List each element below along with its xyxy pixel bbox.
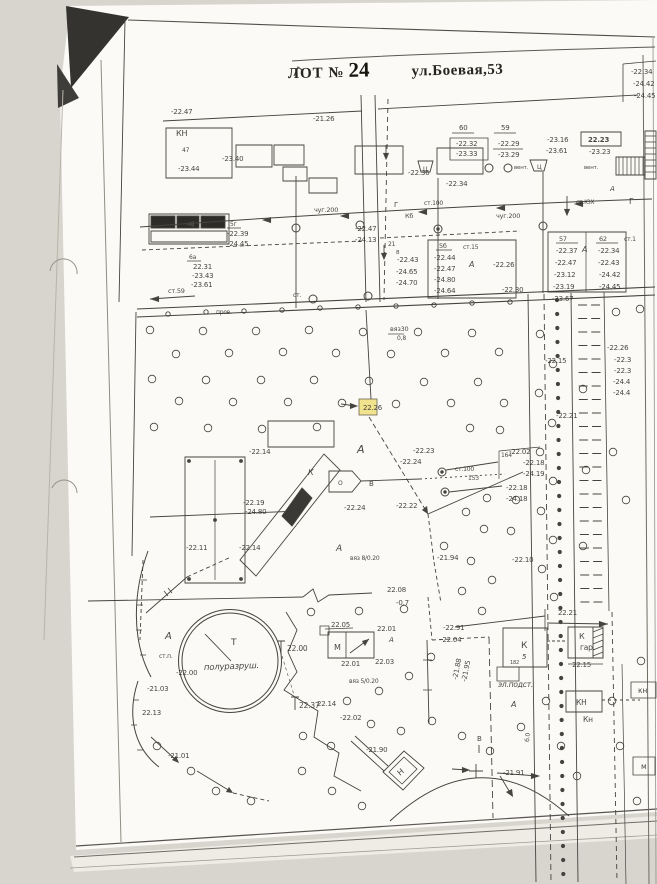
boundary-dot <box>561 830 564 833</box>
elevation-label: 60 <box>459 124 468 132</box>
elevation-label: -23.23 <box>589 148 610 156</box>
boundary-dot <box>557 452 560 455</box>
elevation-label: -22.30 <box>502 286 523 294</box>
elevation-label: вент. <box>514 165 529 171</box>
elevation-label: -22.47 <box>355 225 376 233</box>
map-circle <box>437 228 440 231</box>
boundary-dot <box>560 690 563 693</box>
elevation-label: -22.26 <box>493 261 515 269</box>
elevation-label: 5г <box>230 221 237 228</box>
boundary-dot <box>561 774 564 777</box>
elevation-label: -22.14 <box>239 544 261 552</box>
boundary-dot <box>557 438 560 441</box>
elevation-label: К <box>308 468 314 477</box>
elevation-label: -24.19 <box>523 470 544 478</box>
boundary-dot <box>560 704 563 707</box>
elevation-label: -22.39 <box>227 230 248 238</box>
elevation-label: ст.59 <box>168 287 185 295</box>
elevation-label: -24.80 <box>434 276 455 284</box>
elevation-label: -22.24 <box>344 504 366 512</box>
elevation-label: -23.33 <box>456 150 477 158</box>
elevation-label: 153 <box>468 475 479 482</box>
boundary-dot <box>561 802 564 805</box>
elevation-label: -24.45 <box>599 283 620 291</box>
boundary-dot <box>559 592 562 595</box>
elevation-label: -23.40 <box>222 155 243 163</box>
elevation-label: ст.ЮХ <box>576 199 594 206</box>
elevation-label: б.0 <box>524 732 532 742</box>
elevation-label: -22.19 <box>243 499 264 507</box>
elevation-label: -24.42 <box>633 80 654 88</box>
boundary-dot <box>557 424 560 427</box>
elevation-label: -21.90 <box>366 746 387 754</box>
elevation-label: вяз 8/0.20 <box>350 555 380 562</box>
elevation-label: А <box>335 544 342 554</box>
elevation-label: -23.29 <box>498 151 519 159</box>
site-plan-map: -22.47-21.26КН47-23.44-23.406059-22.32-2… <box>0 0 657 884</box>
elevation-label: кн <box>638 686 647 695</box>
elevation-label: 22.21 <box>558 609 577 617</box>
map-circle <box>240 578 243 581</box>
elevation-label: Кб <box>405 212 413 220</box>
boundary-dot <box>561 858 564 861</box>
elevation-label: -24.45 <box>634 92 655 100</box>
elevation-label: -22.47 <box>171 108 192 116</box>
elevation-label: 22.13 <box>142 709 161 717</box>
elevation-label: -21.26 <box>313 115 335 123</box>
elevation-label: -24.13 <box>355 236 376 244</box>
elevation-label: -23.43 <box>192 272 213 280</box>
boundary-dot <box>558 564 561 567</box>
elevation-label: -22.47 <box>434 265 455 273</box>
elevation-label: 22.05 <box>331 621 350 629</box>
elevation-label: ст.п. <box>159 653 173 660</box>
elevation-label: -22.43 <box>397 256 418 264</box>
elevation-label: -24.4 <box>613 389 631 397</box>
elevation-label: -22.34 <box>446 180 468 188</box>
elevation-label: В <box>369 480 374 488</box>
elevation-label: 22.31 <box>193 263 212 271</box>
boundary-dot <box>557 494 560 497</box>
elevation-label: -21.03 <box>147 685 168 693</box>
elevation-label: -24.42 <box>599 271 620 279</box>
elevation-label: -22.22 <box>396 502 417 510</box>
elevation-label: м <box>641 762 646 771</box>
elevation-label: -23.16 <box>547 136 569 144</box>
boundary-dot <box>558 578 561 581</box>
elevation-label: -22.91 <box>443 624 464 632</box>
elevation-label: -22.32 <box>456 140 477 148</box>
elevation-label: полуразруш. <box>204 661 259 673</box>
elevation-label: 57 <box>559 235 567 243</box>
elevation-label: Г <box>629 197 634 206</box>
boundary-dot <box>560 760 563 763</box>
boundary-dot <box>562 872 565 875</box>
elevation-label: О <box>338 480 343 487</box>
boundary-dot <box>555 312 558 315</box>
boundary-dot <box>561 788 564 791</box>
boundary-dot <box>558 522 561 525</box>
elevation-label: 21 <box>388 241 396 248</box>
elevation-label: -22.18 <box>506 484 527 492</box>
elevation-label: -24.4 <box>613 378 631 386</box>
elevation-label: 5б <box>439 242 447 250</box>
boundary-dot <box>561 844 564 847</box>
elevation-label: 22.03 <box>375 658 394 666</box>
boundary-dot <box>558 536 561 539</box>
elevation-label: М <box>334 643 341 652</box>
elevation-label: чуг.200 <box>314 206 338 214</box>
boundary-dot <box>557 480 560 483</box>
elevation-label: 22.01 <box>377 625 396 633</box>
boundary-dot <box>561 816 564 819</box>
elevation-label: -22.18 <box>523 459 544 467</box>
boundary-dot <box>559 662 562 665</box>
map-circle <box>188 460 191 463</box>
boundary-dot <box>559 676 562 679</box>
highlighted-elevation-label: 22.26 <box>363 404 383 412</box>
street-address: ул.Боевая,53 <box>411 62 503 81</box>
elevation-label: А <box>581 245 587 254</box>
elevation-label: К <box>579 632 585 641</box>
elevation-label: -0.7 <box>396 599 409 607</box>
boundary-dot <box>559 648 562 651</box>
boundary-dot <box>558 508 561 511</box>
elevation-label: вяз 5/0.20 <box>349 678 379 685</box>
elevation-label: -22.14 <box>249 448 271 456</box>
elevation-label: А <box>609 185 615 193</box>
elevation-label: А <box>510 700 516 709</box>
elevation-label: КН <box>576 698 587 707</box>
elevation-label: -22.3 <box>614 367 631 375</box>
elevation-label: ст.100 <box>455 466 474 473</box>
elevation-label: -22.26 <box>607 344 629 352</box>
elevation-label: вент. <box>584 165 599 171</box>
elevation-label: -21.94 <box>437 554 459 562</box>
boundary-dot <box>556 382 559 385</box>
map-circle <box>240 460 243 463</box>
boundary-dot <box>559 634 562 637</box>
elevation-label: 0,8 <box>397 335 406 342</box>
elevation-label: -22.02 <box>509 448 530 456</box>
elevation-label: пров. <box>216 309 232 316</box>
boundary-dot <box>560 718 563 721</box>
elevation-label: -22.37 <box>556 247 577 255</box>
map-circle <box>444 491 447 494</box>
elevation-label: ст.1 <box>624 236 636 243</box>
elevation-label: В <box>477 735 482 743</box>
elevation-label: КН <box>176 129 187 138</box>
paper-sheet <box>60 0 657 850</box>
elevation-label: -22.29 <box>498 140 519 148</box>
elevation-label: 6а <box>189 254 197 261</box>
elevation-label: -23.61 <box>191 281 212 289</box>
elevation-label: -22.43 <box>598 259 619 267</box>
elevation-label: -22.3 <box>614 356 631 364</box>
elevation-label: эл.подст. <box>498 680 533 689</box>
elevation-label: -22.34 <box>631 68 653 76</box>
elevation-label: -22.24 <box>400 458 422 466</box>
scanned-page: -22.47-21.26КН47-23.44-23.406059-22.32-2… <box>0 0 657 884</box>
elevation-label: Кн <box>583 715 593 724</box>
elevation-label: 22.15 <box>572 661 591 669</box>
elevation-label: -22.21 <box>556 412 577 420</box>
elevation-label: К <box>521 641 528 651</box>
elevation-label: -24.70 <box>396 279 417 287</box>
elevation-label: -24.80 <box>245 508 266 516</box>
elevation-label: 47 <box>182 147 190 154</box>
elevation-label: -22.00 <box>176 669 197 677</box>
boundary-dot <box>556 396 559 399</box>
elevation-label: -24.45 <box>227 240 248 248</box>
elevation-label: -22.11 <box>186 544 207 552</box>
elevation-label: ст.100 <box>424 200 443 207</box>
elevation-label: 22.08 <box>387 586 406 594</box>
elevation-label: -22.04 <box>440 636 462 644</box>
boundary-dot <box>556 368 559 371</box>
elevation-label: -24.64 <box>434 287 456 295</box>
elevation-label: А <box>164 631 172 642</box>
boundary-dot <box>556 326 559 329</box>
boundary-dot <box>558 550 561 553</box>
elevation-label: -23.12 <box>554 271 575 279</box>
lot-number: 24 <box>348 57 370 82</box>
elevation-label: 59 <box>501 124 510 132</box>
elevation-label: -21.91 <box>503 769 524 777</box>
elevation-label: -24.18 <box>506 495 527 503</box>
elevation-label: -22.36 <box>408 169 430 177</box>
elevation-label: ст. <box>293 292 301 299</box>
elevation-label: -22.15 <box>545 357 566 365</box>
elevation-label: Ц <box>537 164 542 171</box>
elevation-label: -23.19 <box>553 283 574 291</box>
elevation-label: 22.23 <box>588 136 609 144</box>
elevation-label: 22.01 <box>341 660 360 668</box>
elevation-label: -22.02 <box>340 714 361 722</box>
elevation-label: -22.44 <box>434 254 456 262</box>
elevation-label: ст.15 <box>463 244 479 251</box>
elevation-label: -23.61 <box>546 147 567 155</box>
elevation-label: -23.67 <box>552 295 573 303</box>
elevation-label: гар. <box>580 643 595 652</box>
elevation-label: -22.34 <box>598 247 620 255</box>
map-circle <box>188 578 191 581</box>
boundary-dot <box>557 466 560 469</box>
elevation-label: Г <box>394 201 398 209</box>
elevation-label: А <box>356 443 364 456</box>
elevation-label: 22.37 <box>299 701 320 710</box>
elevation-label: -21.01 <box>168 752 189 760</box>
elevation-label: вяз30 <box>390 325 409 333</box>
map-circle <box>441 471 444 474</box>
boundary-dot <box>560 732 563 735</box>
elevation-label: 182 <box>510 660 519 666</box>
lot-title-prefix: ЛОТ № <box>288 65 345 83</box>
elevation-label: 22.14 <box>317 700 337 708</box>
elevation-label: 62 <box>599 235 607 243</box>
elevation-label: -22.47 <box>555 259 576 267</box>
boundary-dot <box>556 340 559 343</box>
elevation-label: -22.23 <box>413 447 434 455</box>
elevation-label: -23.44 <box>178 165 200 173</box>
elevation-label: 22.00 <box>287 644 308 653</box>
elevation-label: А <box>388 636 394 644</box>
elevation-label: 5 <box>522 653 527 661</box>
map-circle <box>214 519 217 522</box>
elevation-label: А <box>468 260 474 269</box>
elevation-label: -24.65 <box>396 268 417 276</box>
elevation-label: Т <box>230 638 237 648</box>
title-block: ЛОТ № 24 ул.Боевая,53 <box>288 53 589 105</box>
elevation-label: чуг.200 <box>496 212 520 220</box>
map-line <box>177 216 199 228</box>
elevation-label: -22.10 <box>512 556 533 564</box>
